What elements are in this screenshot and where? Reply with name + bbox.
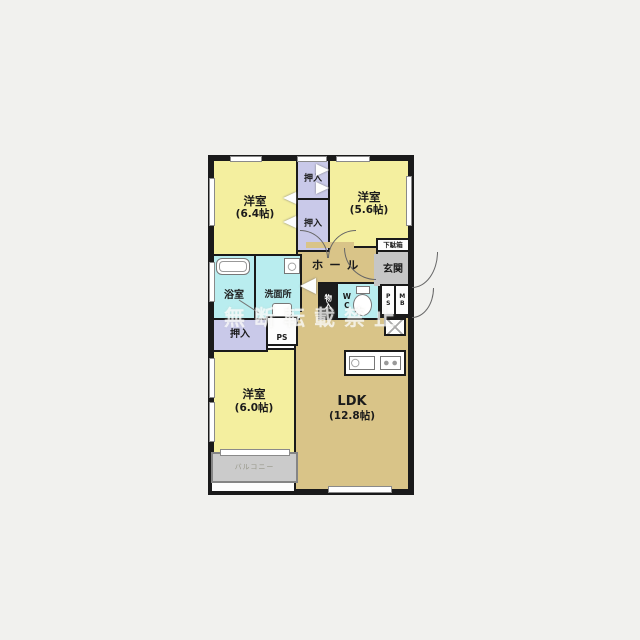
balcony: バルコニー <box>211 452 298 483</box>
window-balcony-slider <box>220 449 290 456</box>
washroom-door-mark-icon <box>300 278 316 294</box>
closet-door-mark-icon <box>316 182 329 194</box>
room-bedroom-6-4: 洋室 (6.4帖) <box>212 159 298 256</box>
toilet-tank-icon <box>356 286 370 294</box>
window-top-closet <box>297 156 327 162</box>
room-ldk: LDK (12.8帖) <box>294 316 410 491</box>
washbasin-icon <box>284 258 300 274</box>
room-bedroom-6-0: 洋室 (6.0帖) <box>212 348 296 454</box>
door-arc-entrance-outer <box>412 252 438 288</box>
window-ldk-bottom <box>328 486 392 493</box>
watermark-text: 無断転載禁止 <box>224 302 524 332</box>
floor-plan-image: ホール LDK (12.8帖) 洋室 (6.4帖) 洋室 (5.6帖) 洋室 (… <box>0 0 640 640</box>
stove-icon <box>380 356 401 370</box>
window-top-bedroom2 <box>336 156 370 162</box>
window-top-bedroom1 <box>230 156 262 162</box>
bedroom-6-0-label: 洋室 (6.0帖) <box>235 387 274 415</box>
closet-door-mark-icon <box>316 164 329 176</box>
window-right-bedroom2 <box>406 176 412 226</box>
window-left-bedroom1 <box>209 178 215 226</box>
window-left-bedroom3-a <box>209 358 215 398</box>
closet-door-mark-icon <box>283 216 296 228</box>
window-left-bedroom3-b <box>209 402 215 442</box>
ldk-label: LDK (12.8帖) <box>329 394 375 423</box>
bedroom-5-6-label: 洋室 (5.6帖) <box>350 190 389 218</box>
bathtub-icon <box>216 258 250 275</box>
kitchen-sink-icon <box>349 356 375 370</box>
window-left-bath <box>209 262 215 302</box>
bedroom-6-4-label: 洋室 (6.4帖) <box>236 194 275 222</box>
closet-door-mark-icon <box>283 192 296 204</box>
